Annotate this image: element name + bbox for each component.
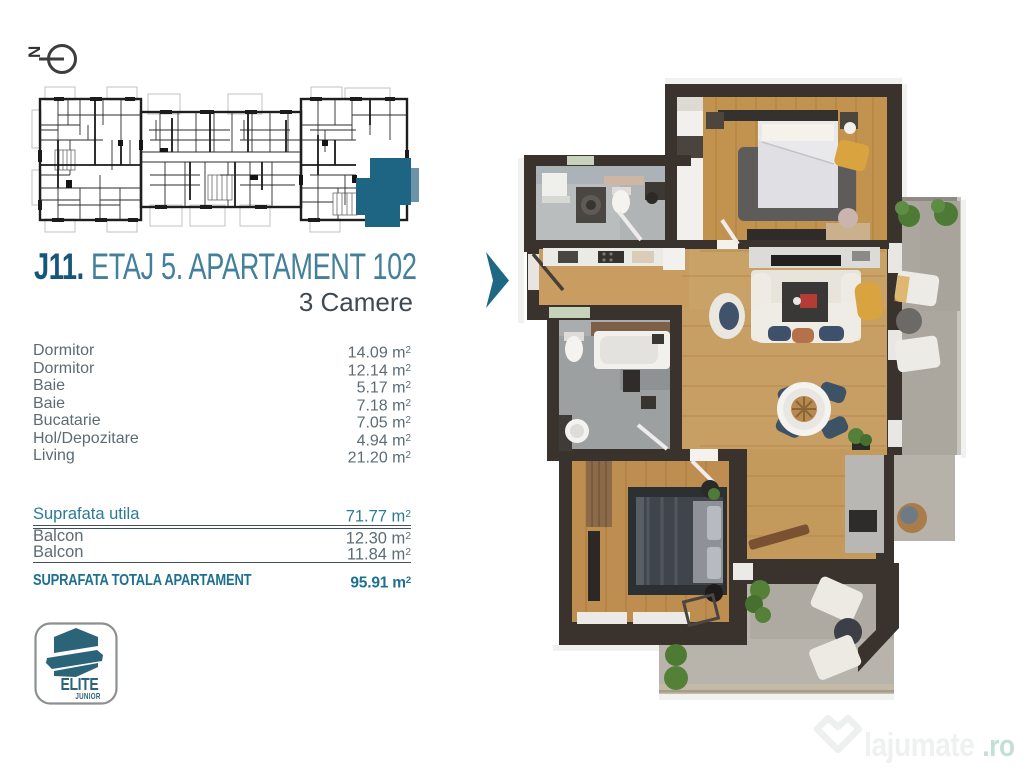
svg-text:lajumate: lajumate bbox=[864, 727, 974, 764]
svg-text:JUNIOR: JUNIOR bbox=[75, 692, 101, 701]
svg-text:.ro: .ro bbox=[982, 729, 1014, 763]
svg-text:N: N bbox=[25, 46, 44, 58]
